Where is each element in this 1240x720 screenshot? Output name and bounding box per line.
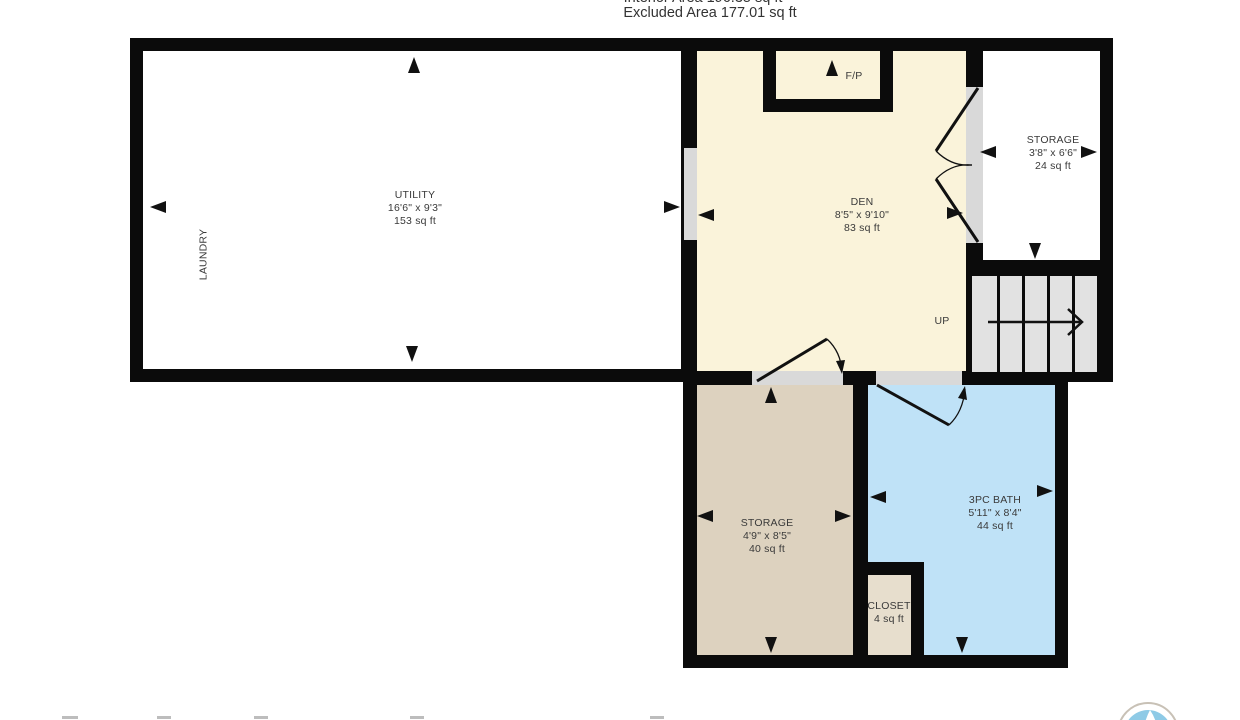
storage-lower-name: STORAGE — [667, 517, 867, 530]
storage-upper-dims: 3'8" x 6'6" — [978, 147, 1128, 160]
watermark-fragment — [410, 716, 424, 719]
watermark-fragment — [650, 716, 664, 719]
closet-label: CLOSET 4 sq ft — [839, 600, 939, 626]
watermark-fragment — [254, 716, 268, 719]
storage-upper-area: 24 sq ft — [978, 160, 1128, 173]
stair-tread-line — [997, 276, 1000, 372]
watermark-fragment — [62, 716, 78, 719]
stairs-up-label: UP — [922, 315, 962, 328]
stairs — [966, 276, 1097, 372]
utility-name: UTILITY — [315, 189, 515, 202]
storage-upper-name: STORAGE — [978, 134, 1128, 147]
storage-lower-dims: 4'9" x 8'5" — [667, 530, 867, 543]
bath-name: 3PC BATH — [895, 494, 1095, 507]
floorplan-image: Interior Area 196.35 sq ft Excluded Area… — [0, 0, 1240, 720]
den-area: 83 sq ft — [762, 222, 962, 235]
closet-name: CLOSET — [839, 600, 939, 613]
utility-area: 153 sq ft — [315, 215, 515, 228]
den-name: DEN — [762, 196, 962, 209]
wall-stub — [966, 51, 983, 87]
bath-area: 44 sq ft — [895, 520, 1095, 533]
stair-tread-line — [1072, 276, 1075, 372]
stair-tread-line — [1047, 276, 1050, 372]
storage-lower-label: STORAGE 4'9" x 8'5" 40 sq ft — [667, 517, 867, 556]
company-logo — [1117, 702, 1179, 720]
closet-area: 4 sq ft — [839, 613, 939, 626]
storage-stairs-divider-wall — [966, 260, 1113, 276]
bath-label: 3PC BATH 5'11" x 8'4" 44 sq ft — [895, 494, 1095, 533]
storage-lower-area: 40 sq ft — [667, 543, 867, 556]
storage-lower-door-threshold — [752, 371, 843, 385]
stair-tread-line — [1022, 276, 1025, 372]
utility-label: UTILITY 16'6" x 9'3" 153 sq ft — [315, 189, 515, 228]
watermark-fragment — [157, 716, 171, 719]
utility-dims: 16'6" x 9'3" — [315, 202, 515, 215]
bath-door-threshold — [876, 371, 962, 385]
bath-dims: 5'11" x 8'4" — [895, 507, 1095, 520]
den-label: DEN 8'5" x 9'10" 83 sq ft — [762, 196, 962, 235]
compass-logo-icon — [1119, 704, 1177, 720]
stair-edge — [966, 276, 972, 372]
fireplace-label: F/P — [824, 70, 884, 83]
storage-upper-label: STORAGE 3'8" x 6'6" 24 sq ft — [978, 134, 1128, 173]
den-dims: 8'5" x 9'10" — [762, 209, 962, 222]
laundry-label: LAUNDRY — [198, 210, 211, 300]
excluded-area-label: Excluded Area 177.01 sq ft — [510, 6, 910, 21]
utility-door-threshold — [684, 148, 697, 240]
wall-under-stairs — [1068, 372, 1113, 382]
